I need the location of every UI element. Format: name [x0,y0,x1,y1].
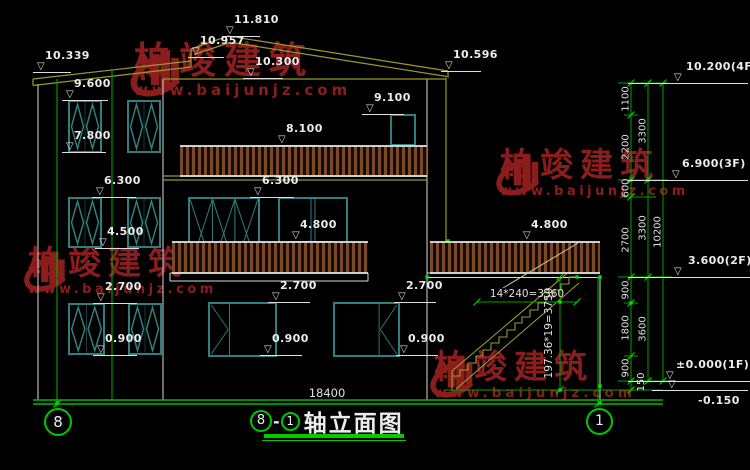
elevation-triangle-icon: ▽ [66,142,74,152]
elevation-triangle-icon: ▽ [247,68,255,78]
drawing-title: 8-1轴立面图 [250,404,404,438]
elevation-triangle-icon: ▽ [99,238,107,248]
elevation-triangle-icon: ▽ [66,90,74,100]
elevation-triangle-icon: ▽ [272,292,280,302]
elevation-triangle-icon: ▽ [672,170,680,180]
title-dash: - [273,412,280,431]
elevation-triangle-icon: ▽ [366,104,374,114]
elevation-triangle-icon: ▽ [292,231,300,241]
elevation-triangle-icon: ▽ [398,292,406,302]
elevation-triangle-icon: ▽ [668,380,676,390]
elevation-triangle-icon: ▽ [192,47,200,57]
elevation-triangle-icon: ▽ [96,187,104,197]
elevation-triangle-icon: ▽ [97,345,105,355]
elevation-triangle-icon: ▽ [400,345,408,355]
elevation-triangle-icon: ▽ [674,73,682,83]
elevation-triangle-icon: ▽ [523,231,531,241]
axis-bubble-8: 8 [44,408,72,436]
elevation-triangle-icon: ▽ [97,293,105,303]
elevation-triangle-icon: ▽ [278,135,286,145]
cad-elevation-drawing: 柏竣建筑 www.baijunjz.com 柏竣建筑 www.baijunjz.… [0,0,750,470]
elevation-triangle-icon: ▽ [674,267,682,277]
title-underline-thin [262,440,406,441]
elevation-triangle-icon: ▽ [264,345,272,355]
title-underline-thick [264,434,404,438]
elevation-triangle-icon: ▽ [254,187,262,197]
elevation-triangle-icon: ▽ [445,61,453,71]
title-axis-circle: 8 [250,410,272,432]
elevation-triangle-icon: ▽ [37,62,45,72]
axis-bubble-1: 1 [586,408,613,435]
title-axis-circle: 1 [281,412,300,431]
